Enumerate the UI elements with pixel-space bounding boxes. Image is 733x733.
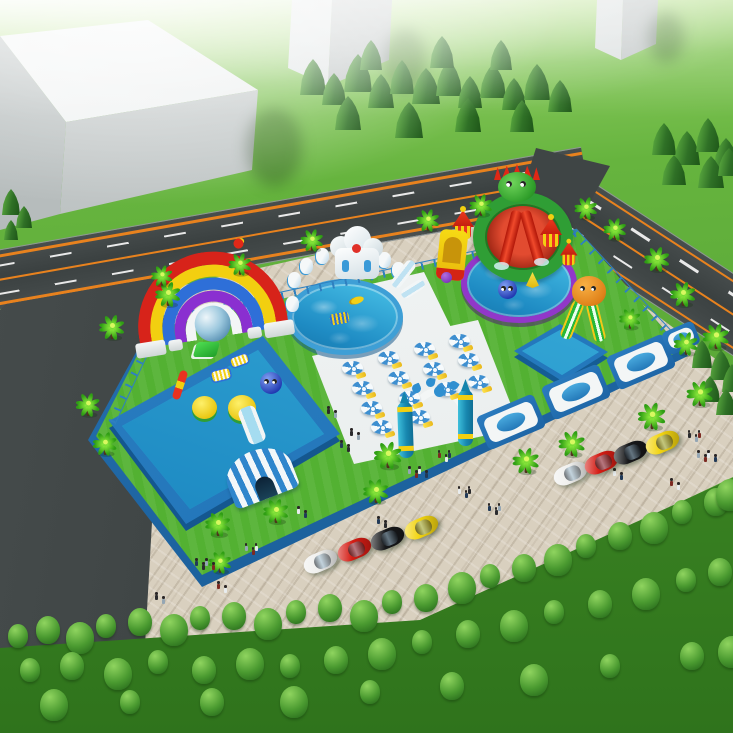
forest-tree — [480, 564, 500, 588]
palm-tree — [302, 230, 322, 252]
person — [347, 444, 350, 452]
palm-tree — [621, 309, 640, 329]
forest-tree — [680, 642, 704, 670]
forest-tree — [360, 680, 380, 704]
person — [698, 430, 701, 438]
palm-tree — [688, 382, 711, 407]
person — [458, 486, 461, 494]
gate-disc-decor — [434, 386, 445, 397]
conifer-tree — [696, 118, 720, 152]
forest-tree — [382, 590, 402, 614]
person — [255, 543, 258, 551]
person — [340, 440, 343, 448]
person — [195, 558, 198, 566]
forest-tree — [20, 658, 40, 682]
person — [212, 562, 215, 570]
palm-tree — [78, 394, 99, 417]
palm-tree — [95, 433, 116, 456]
person — [677, 482, 680, 490]
person — [245, 543, 248, 551]
conifer-tree — [395, 102, 423, 138]
rainbow-foot — [168, 339, 184, 352]
green-wedge-float — [193, 342, 220, 357]
forest-tree — [148, 650, 168, 674]
forest-tree — [716, 479, 733, 511]
car-windshield — [654, 432, 675, 452]
forest-tree — [66, 622, 94, 654]
gate-pillar-right — [458, 390, 473, 446]
forest-tree — [512, 554, 536, 582]
forest-tree — [576, 534, 596, 558]
car-windshield — [312, 551, 333, 571]
forest-tree — [588, 590, 612, 618]
yellow-climb-panel — [435, 229, 468, 282]
palm-tree — [230, 254, 250, 276]
car-windshield — [593, 452, 614, 472]
forest-tree — [200, 688, 224, 716]
person — [714, 454, 717, 462]
person — [224, 585, 227, 593]
person — [425, 470, 428, 478]
forest-tree — [350, 600, 378, 632]
person — [162, 596, 165, 604]
person — [670, 478, 673, 486]
palm-tree — [514, 449, 537, 474]
forest-tree — [412, 630, 432, 654]
forest-tree — [608, 522, 632, 550]
person — [357, 432, 360, 440]
forest-tree — [324, 646, 348, 674]
conifer-tree — [548, 80, 572, 112]
rainbow-foot — [247, 326, 263, 339]
forest-tree — [708, 558, 732, 586]
building-shadow — [648, 12, 684, 62]
person — [377, 516, 380, 524]
palm-tree — [376, 443, 400, 469]
forest-tree — [8, 624, 28, 648]
slide-splash — [494, 262, 509, 270]
forest-tree — [236, 648, 264, 680]
arch-ornament — [233, 238, 244, 249]
palm-tree — [418, 210, 438, 232]
forest-tree — [286, 600, 306, 624]
person — [697, 450, 700, 458]
water-park-aerial-render — [0, 0, 733, 733]
person — [350, 428, 353, 436]
person — [498, 503, 501, 511]
forest-tree — [600, 654, 620, 678]
car-windshield — [413, 517, 434, 537]
forest-tree — [160, 614, 188, 646]
forest-tree — [440, 672, 464, 700]
forest-tree — [448, 572, 476, 604]
palm-tree — [704, 325, 727, 350]
forest-tree — [632, 578, 660, 610]
person — [205, 558, 208, 566]
forest-tree — [368, 638, 396, 670]
person — [707, 450, 710, 458]
person — [327, 406, 330, 414]
forest-tree — [36, 616, 60, 644]
car-windshield — [346, 539, 367, 559]
person — [418, 466, 421, 474]
person — [688, 430, 691, 438]
conifer-tree — [524, 64, 550, 100]
pool-rim-inflatable — [288, 272, 301, 288]
forest-tree — [676, 568, 696, 592]
forest-tree — [120, 690, 140, 714]
forest-tree — [222, 602, 246, 630]
person — [155, 592, 158, 600]
forest-tree — [190, 606, 210, 630]
forest-tree — [254, 608, 282, 640]
forest-tree — [640, 512, 668, 544]
palm-tree — [471, 195, 491, 217]
blue-ball-float — [498, 280, 517, 299]
yellow-duck-float — [192, 396, 217, 419]
dragon-head — [498, 172, 536, 202]
palm-tree — [640, 404, 664, 430]
palm-tree — [365, 480, 387, 504]
palm-tree — [153, 266, 172, 286]
forest-tree — [280, 686, 308, 718]
car-windshield — [562, 463, 583, 483]
orange-octopus-head — [572, 276, 606, 306]
palm-tree — [576, 198, 596, 220]
forest-tree — [104, 658, 132, 690]
person — [408, 466, 411, 474]
palm-tree — [101, 316, 123, 340]
conifer-tree — [430, 36, 454, 68]
person — [468, 486, 471, 494]
forest-tree — [672, 500, 692, 524]
forest-tree — [96, 614, 116, 638]
person — [488, 503, 491, 511]
palm-tree — [676, 333, 697, 356]
forest-tree — [520, 664, 548, 696]
car-windshield — [622, 442, 643, 462]
palm-tree — [672, 283, 694, 307]
person — [304, 510, 307, 518]
person — [613, 468, 616, 476]
person — [384, 520, 387, 528]
forest-tree — [318, 594, 342, 622]
person — [217, 581, 220, 589]
person — [297, 506, 300, 514]
person — [334, 410, 337, 418]
car-windshield — [379, 528, 400, 548]
palm-tree — [605, 219, 625, 241]
pool-rim-inflatable — [286, 296, 299, 312]
forest-tree — [544, 600, 564, 624]
pool-rim-inflatable — [300, 258, 313, 274]
forest-tree — [280, 654, 300, 678]
forest-tree — [544, 544, 572, 576]
person — [448, 450, 451, 458]
palm-tree — [560, 432, 583, 457]
ice-castle-structure — [330, 226, 382, 280]
palm-tree — [207, 513, 229, 537]
building-shadow — [246, 108, 302, 186]
person — [620, 472, 623, 480]
forest-tree — [40, 689, 68, 721]
forest-tree — [456, 620, 480, 648]
forest-tree — [500, 610, 528, 642]
conifer-tree — [490, 40, 512, 70]
purple-octopus — [441, 272, 452, 283]
conifer-tree — [652, 123, 676, 155]
blue-ball-float — [260, 372, 282, 394]
palm-tree — [646, 248, 668, 272]
forest-tree — [128, 608, 152, 636]
forest-tree — [414, 584, 438, 612]
palm-tree — [265, 500, 287, 524]
person — [438, 450, 441, 458]
forest-tree — [60, 652, 84, 680]
forest-tree — [192, 656, 216, 684]
slide-splash — [534, 258, 549, 266]
